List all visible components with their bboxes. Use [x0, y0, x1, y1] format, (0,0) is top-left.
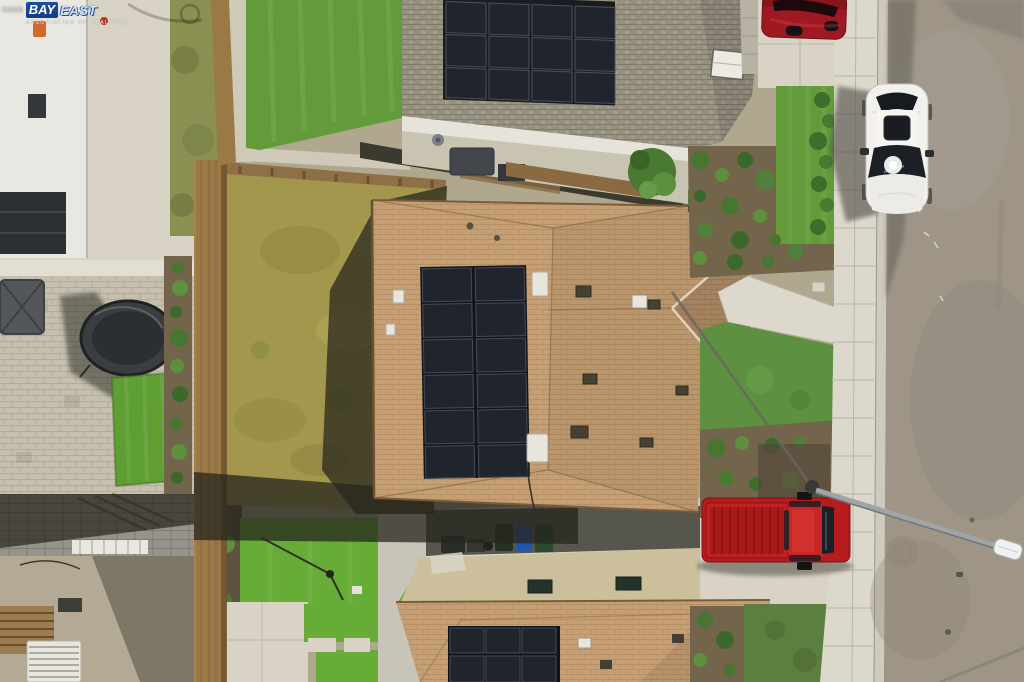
red-pickup-truck [697, 492, 853, 576]
skylight-window [0, 192, 66, 254]
roof-vent [616, 577, 641, 590]
watermark-copyright: ©2020 [2, 7, 23, 14]
gazebo-roof [0, 280, 44, 334]
bottom-house-solar-panels [448, 626, 560, 682]
roof-vent [528, 580, 552, 593]
sunroof [884, 116, 910, 140]
aerial-photo-canvas [0, 0, 1024, 682]
main-solar-array [420, 265, 530, 479]
side-fence [194, 160, 227, 682]
realtor-watermark: ©2020 BAY EAST [2, 2, 97, 18]
white-car [830, 84, 934, 222]
patio-equipment [450, 148, 494, 175]
red-suv [761, 0, 847, 40]
stepping-stone [344, 638, 370, 652]
skylight [711, 49, 746, 79]
watermark-east: EAST [60, 4, 97, 17]
top-house-solar-array [443, 0, 615, 105]
white-railing [72, 540, 148, 554]
wheel [785, 26, 802, 37]
aerial-photo: ©2020 BAY EAST ASSOCIATION OF REALTORS [0, 0, 1024, 682]
white-slatted-unit [27, 641, 81, 682]
left-neighbor-yard [0, 0, 218, 506]
watermark-bay: BAY [26, 2, 58, 18]
roof-vent [578, 638, 591, 648]
pavement-stain [886, 536, 918, 568]
roof-vent [527, 434, 548, 462]
utility-box [812, 282, 825, 292]
side-mirror [860, 148, 869, 155]
side-mirror [925, 150, 934, 157]
stepping-stone [308, 638, 336, 652]
roof-vent [532, 272, 548, 296]
side-mirror [797, 562, 812, 570]
watermark-subtitle: ASSOCIATION OF REALTORS [26, 20, 128, 26]
